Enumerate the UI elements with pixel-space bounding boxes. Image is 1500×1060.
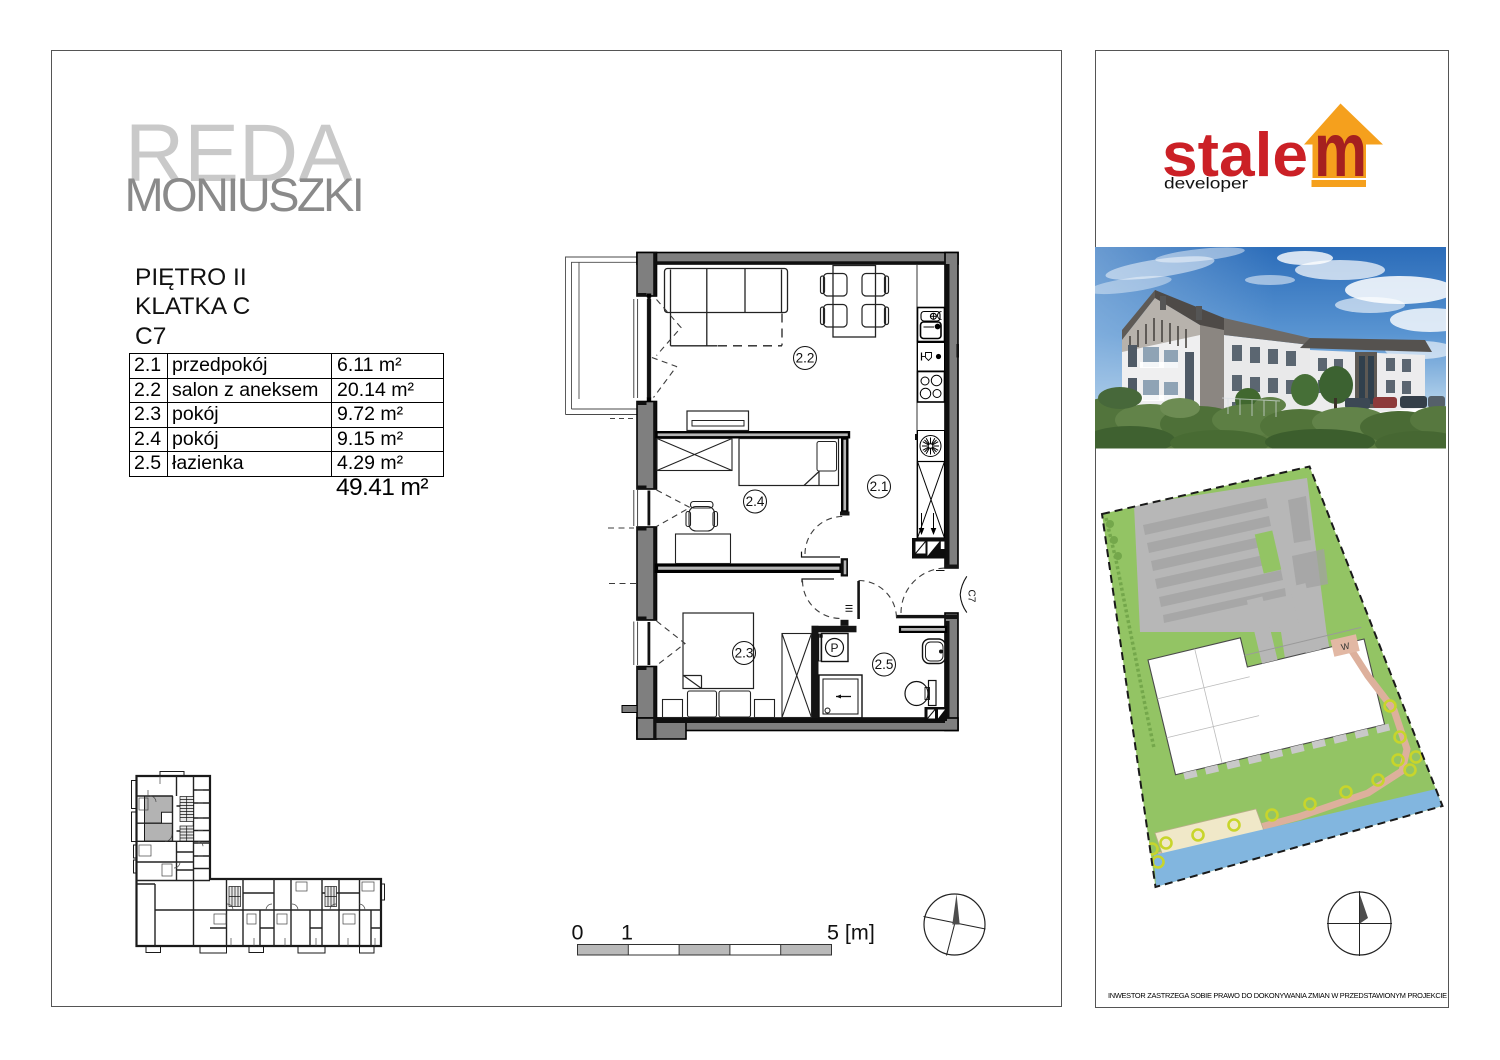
svg-text:2.5: 2.5 xyxy=(875,657,894,672)
svg-text:2.3: 2.3 xyxy=(735,646,754,661)
svg-text:2.2: 2.2 xyxy=(796,351,815,366)
svg-text:C7: C7 xyxy=(965,590,976,603)
svg-text:2.4: 2.4 xyxy=(746,494,765,509)
svg-text:developer: developer xyxy=(1164,176,1248,193)
svg-text:m: m xyxy=(1314,108,1367,193)
svg-text:2.1: 2.1 xyxy=(870,479,889,494)
svg-text:0: 0 xyxy=(572,921,584,945)
svg-text:5 [m]: 5 [m] xyxy=(827,921,875,945)
svg-text:P: P xyxy=(830,641,838,655)
svg-text:1: 1 xyxy=(621,921,633,945)
